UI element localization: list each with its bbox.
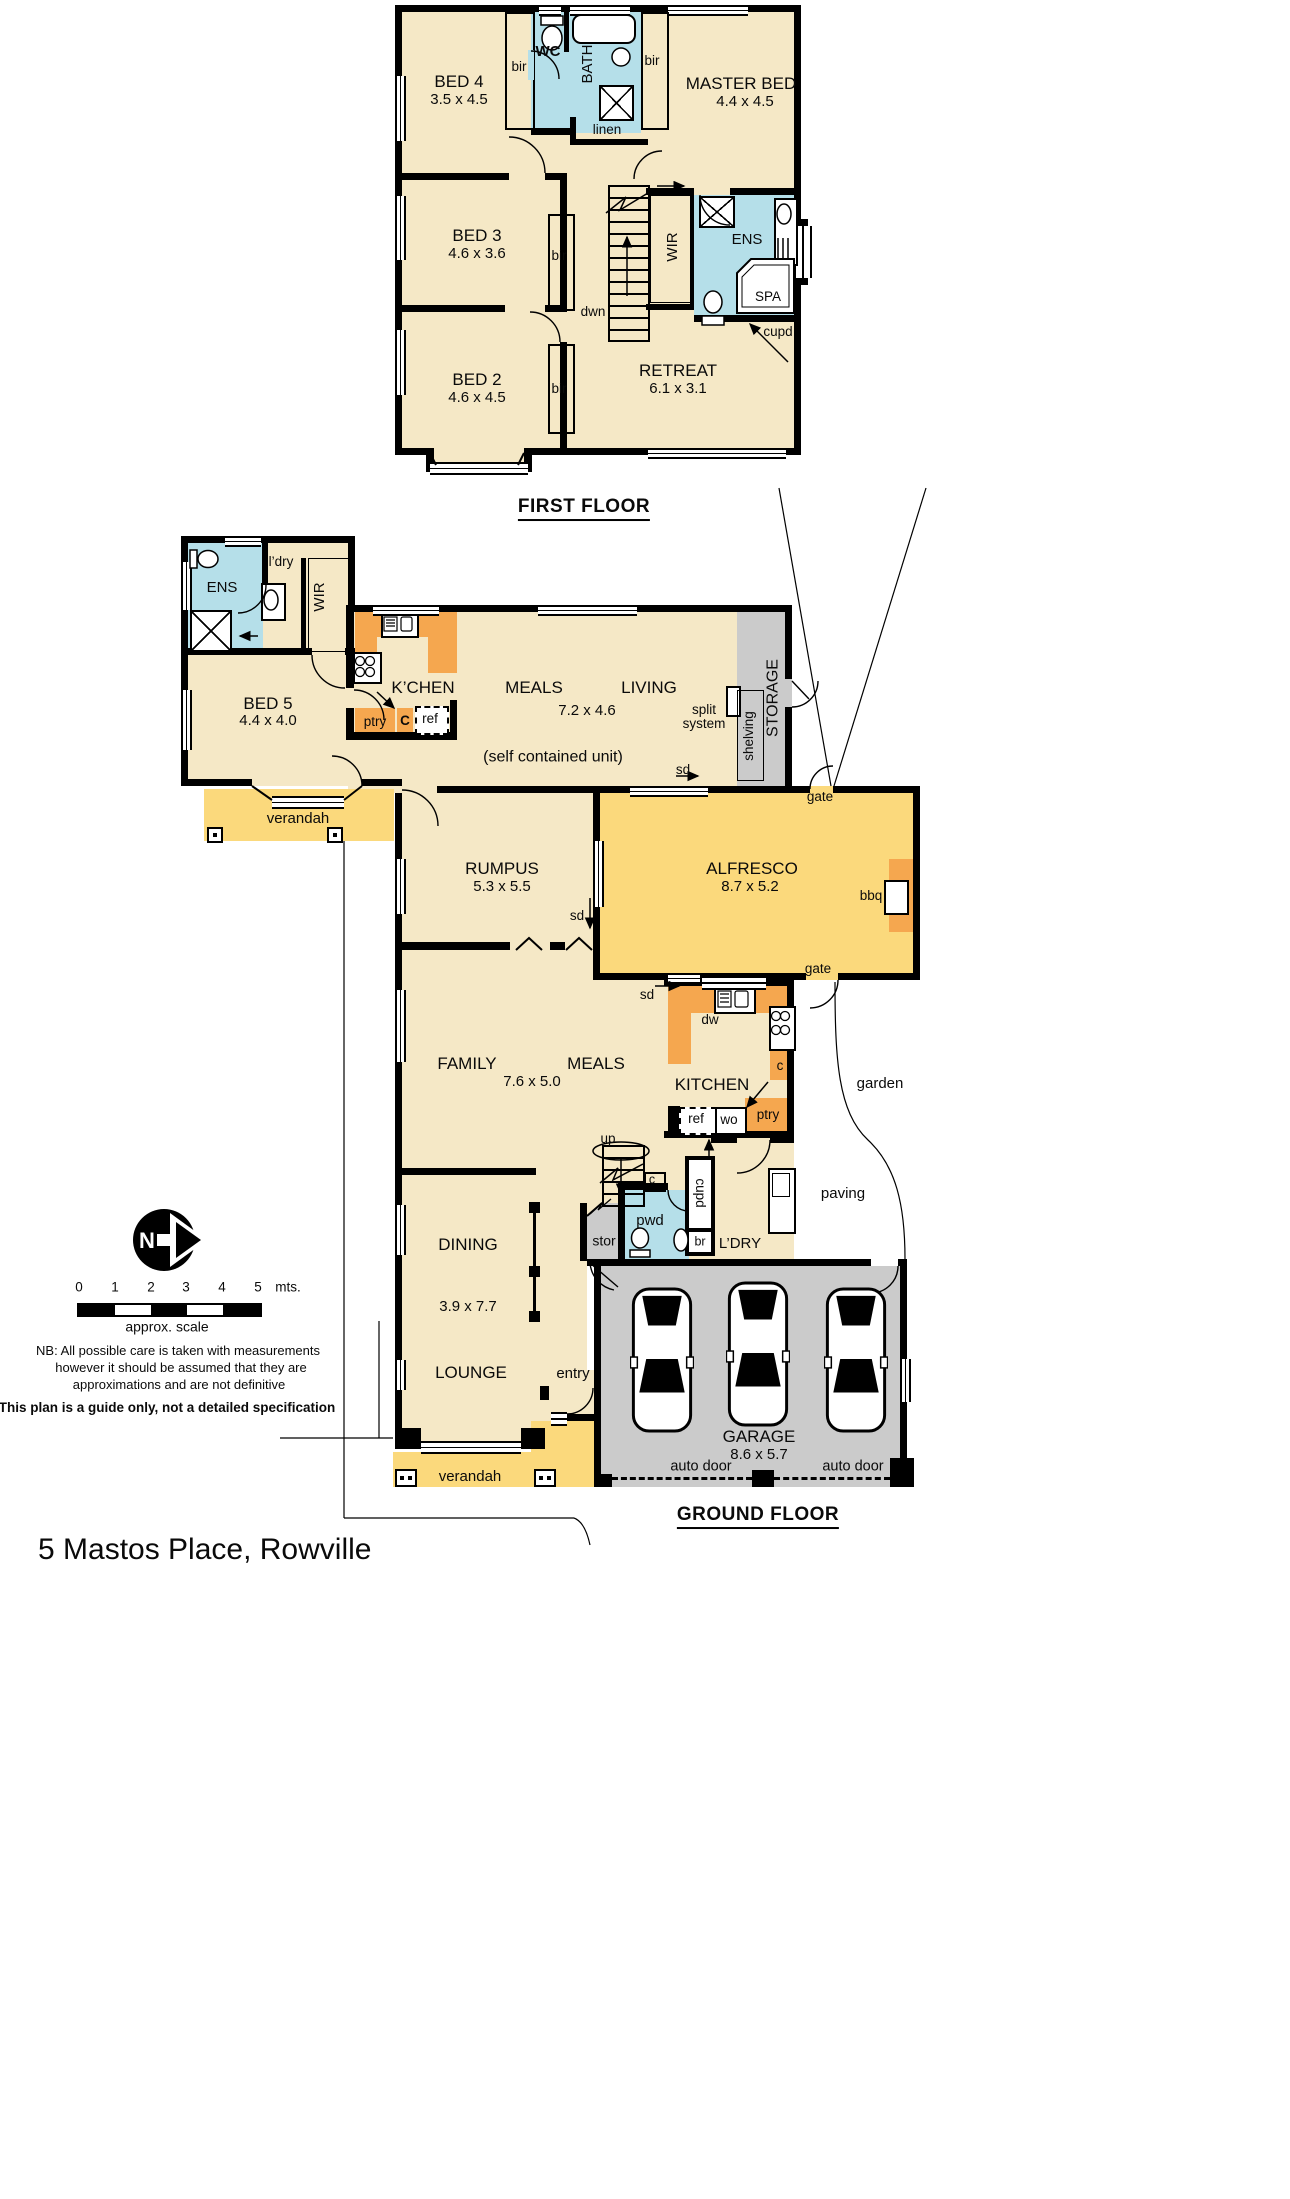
room-label-living: LIVING	[621, 679, 677, 697]
floor-label-first: FIRST FLOOR	[518, 497, 650, 521]
label-entry: entry	[556, 1366, 589, 1382]
dim-bed5: 4.4 x 4.0	[239, 713, 297, 729]
scale-unit: mts.	[275, 1280, 301, 1295]
label-wir-ff: WIR	[665, 232, 681, 261]
label-up: up	[600, 1132, 615, 1146]
scale-tick-2: 2	[147, 1280, 155, 1295]
label-gate-1: gate	[807, 790, 833, 804]
label-ens-gf: ENS	[207, 580, 238, 596]
label-sd-3: sd	[640, 988, 654, 1002]
room-label-bed2: BED 2	[452, 371, 501, 389]
room-label-bed4: BED 4	[434, 73, 483, 91]
room-label-family: FAMILY	[437, 1055, 496, 1073]
room-label-rumpus: RUMPUS	[465, 860, 539, 878]
plan-linework: N	[0, 0, 1290, 2199]
dim-master: 4.4 x 4.5	[716, 94, 774, 110]
label-shelving: shelving	[742, 711, 756, 761]
dim-bed4: 3.5 x 4.5	[430, 92, 488, 108]
label-ens-ff: ENS	[732, 232, 763, 248]
dim-dining: 3.9 x 7.7	[439, 1299, 497, 1315]
spa-icon	[737, 259, 794, 313]
label-bir: bir	[644, 54, 659, 68]
scale-caption: approx. scale	[125, 1320, 208, 1335]
scale-tick-0: 0	[75, 1280, 83, 1295]
car-icon	[824, 1289, 887, 1431]
label-wir-gf: WIR	[312, 582, 328, 611]
room-label-retreat: RETREAT	[639, 362, 717, 380]
label-c-1: C	[400, 714, 410, 728]
label-auto-door-1: auto door	[670, 1459, 731, 1474]
label-dw: dw	[701, 1013, 718, 1027]
scale-bar	[77, 1303, 262, 1317]
room-label-alfresco: ALFRESCO	[706, 860, 798, 878]
label-c-2: c	[777, 1059, 784, 1073]
label-wo: wo	[720, 1113, 737, 1127]
car-icons	[630, 1283, 887, 1431]
car-icon	[630, 1289, 693, 1431]
label-wc: WC	[536, 44, 561, 60]
floor-label-ground: GROUND FLOOR	[677, 1505, 839, 1529]
label-paving: paving	[821, 1186, 865, 1202]
label-auto-door-2: auto door	[822, 1459, 883, 1474]
label-gate-2: gate	[805, 962, 831, 976]
label-stor: stor	[592, 1234, 615, 1249]
scale-tick-3: 3	[182, 1280, 190, 1295]
label-pwd: pwd	[636, 1213, 664, 1229]
label-ref-1: ref	[422, 712, 438, 726]
label-ref-2: ref	[688, 1112, 704, 1126]
label-bbq: bbq	[860, 889, 883, 903]
dim-alfresco: 8.7 x 5.2	[721, 879, 779, 895]
page-title: 5 Mastos Place, Rowville	[38, 1533, 371, 1567]
label-ptry-2: ptry	[757, 1108, 780, 1122]
stor-edge	[587, 1199, 611, 1216]
car-icon	[726, 1283, 789, 1425]
sink-detail	[384, 617, 748, 1007]
label-self-contained: (self contained unit)	[483, 750, 623, 767]
dim-retreat: 6.1 x 3.1	[649, 381, 707, 397]
room-label-kchen: K’CHEN	[391, 679, 454, 697]
label-ldry: L’DRY	[719, 1236, 761, 1252]
room-label-dining: DINING	[438, 1236, 498, 1254]
label-spa: SPA	[755, 290, 781, 304]
label-bir: bir	[551, 382, 566, 396]
room-label-meals: MEALS	[567, 1055, 625, 1073]
label-garden: garden	[857, 1076, 904, 1092]
label-bath: BATH	[580, 45, 596, 84]
label-sd-2: sd	[570, 909, 584, 923]
dim-family: 7.6 x 5.0	[503, 1074, 561, 1090]
room-label-bed3: BED 3	[452, 227, 501, 245]
scale-segment	[79, 1305, 115, 1315]
guide-note: This plan is a guide only, not a detaile…	[0, 1400, 335, 1415]
label-ptry-1: ptry	[364, 715, 387, 729]
room-label-garage: GARAGE	[723, 1428, 796, 1446]
label-ldry-small: l’dry	[269, 555, 294, 569]
room-label-bed5: BED 5	[243, 695, 292, 713]
dim-meals-unit: 7.2 x 4.6	[558, 703, 616, 719]
north-arrow: N	[133, 1209, 207, 1271]
scale-tick-4: 4	[218, 1280, 226, 1295]
room-label-kitchen: KITCHEN	[675, 1076, 750, 1094]
floor-plan: N BED 4 3.5 x 4.5 bir WC BATH bir MASTER…	[0, 0, 1290, 2199]
label-bir: bir	[511, 60, 526, 74]
disclaimer-line-3: approximations and are not definitive	[73, 1377, 285, 1392]
door-arcs	[238, 51, 898, 1414]
label-cupd-ff: cupd	[763, 325, 792, 339]
room-label-master: MASTER BED	[686, 75, 797, 93]
scale-tick-5: 5	[254, 1280, 262, 1295]
scale-tick-1: 1	[111, 1280, 119, 1295]
dim-bed2: 4.6 x 4.5	[448, 390, 506, 406]
disclaimer-line-1: NB: All possible care is taken with meas…	[36, 1343, 320, 1358]
scale-segment	[223, 1305, 260, 1315]
disclaimer-line-2: however it should be assumed that they a…	[55, 1360, 306, 1375]
room-label-meals-unit: MEALS	[505, 679, 563, 697]
dim-rumpus: 5.3 x 5.5	[473, 879, 531, 895]
label-sd-1: sd	[676, 763, 690, 777]
room-label-lounge: LOUNGE	[435, 1364, 507, 1382]
label-dwn: dwn	[581, 305, 606, 319]
label-bir: bir	[551, 249, 566, 263]
label-verandah-1: verandah	[267, 811, 330, 827]
label-br: br	[694, 1235, 705, 1248]
opening-carets	[516, 938, 592, 950]
label-linen: linen	[593, 123, 622, 137]
label-cupd-gf: cupd	[693, 1178, 707, 1207]
label-c-3: c	[649, 1173, 655, 1186]
north-label: N	[139, 1228, 155, 1253]
label-split-2: system	[683, 717, 726, 731]
room-label-storage: STORAGE	[766, 659, 783, 737]
scale-segment	[151, 1305, 187, 1315]
basin-icon	[264, 48, 791, 1251]
label-verandah-2: verandah	[439, 1469, 502, 1485]
dim-garage: 8.6 x 5.7	[730, 1447, 788, 1463]
dim-bed3: 4.6 x 3.6	[448, 246, 506, 262]
